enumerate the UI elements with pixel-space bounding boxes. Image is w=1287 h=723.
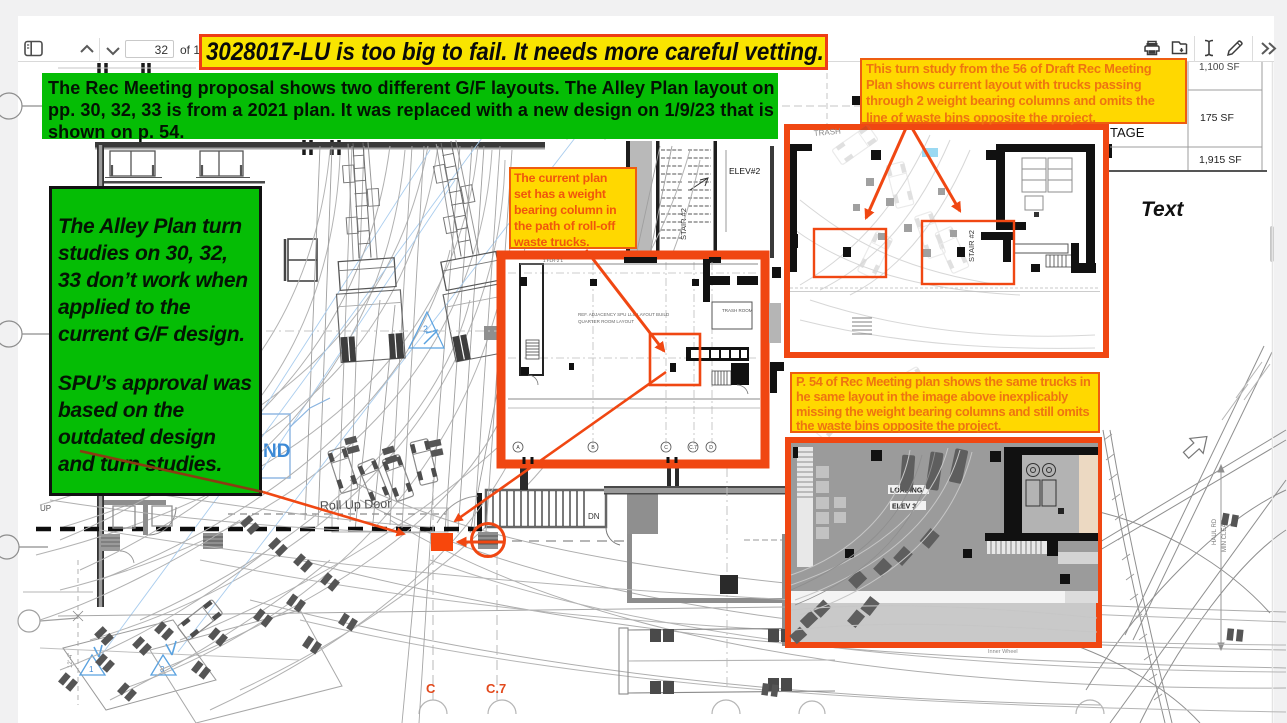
svg-text:STAIR #2: STAIR #2 <box>967 230 976 262</box>
svg-text:QUARTER ROOM LAYOUT: QUARTER ROOM LAYOUT <box>578 319 634 324</box>
svg-text:C.7: C.7 <box>689 445 697 451</box>
svg-text:REF. ADJACENCY SPU LLC LAYOUT: REF. ADJACENCY SPU LLC LAYOUT BUILD <box>578 312 670 317</box>
svg-text:C: C <box>664 445 668 451</box>
svg-text:ELEV 3: ELEV 3 <box>892 504 916 511</box>
svg-text:TRASH ROOM: TRASH ROOM <box>722 308 753 313</box>
svg-text:D: D <box>709 445 713 451</box>
svg-text:1 FLR·2 1: 1 FLR·2 1 <box>543 258 564 263</box>
